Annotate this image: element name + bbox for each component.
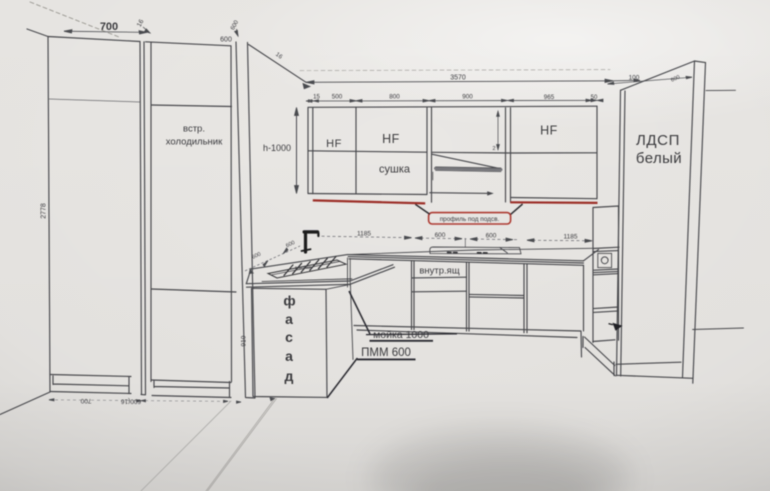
svg-text:2778: 2778 (41, 203, 48, 219)
svg-text:910: 910 (241, 335, 248, 346)
svg-text:белый: белый (636, 150, 682, 167)
svg-text:600(16: 600(16 (121, 398, 142, 405)
svg-text:1185: 1185 (564, 233, 578, 240)
svg-text:ПММ 600: ПММ 600 (361, 347, 411, 359)
svg-text:3570: 3570 (450, 75, 466, 82)
svg-text:HF: HF (326, 138, 342, 150)
svg-text:500: 500 (332, 94, 343, 101)
svg-text:HF: HF (540, 124, 558, 138)
svg-text:холодильник: холодильник (166, 137, 223, 148)
svg-text:600: 600 (220, 37, 232, 44)
svg-text:600: 600 (435, 232, 446, 239)
svg-text:800: 800 (389, 94, 400, 101)
svg-text:а: а (285, 311, 293, 327)
svg-text:965: 965 (544, 94, 555, 101)
svg-text:700: 700 (100, 21, 118, 33)
svg-text:встр.: встр. (183, 124, 205, 135)
svg-text:д: д (285, 368, 294, 384)
svg-text:ЛДСП: ЛДСП (636, 132, 680, 149)
svg-text:сушка: сушка (379, 164, 411, 176)
svg-text:2: 2 (492, 146, 495, 152)
svg-text:HF: HF (382, 132, 400, 146)
svg-text:900: 900 (462, 94, 473, 101)
svg-text:1185: 1185 (357, 231, 371, 238)
svg-text:h-1000: h-1000 (263, 143, 291, 153)
svg-text:50: 50 (591, 95, 598, 101)
svg-text:с: с (285, 329, 293, 345)
svg-text:15: 15 (313, 95, 320, 101)
svg-text:а: а (285, 348, 293, 364)
svg-text:внутр.ящ: внутр.ящ (419, 266, 459, 277)
svg-text:600: 600 (486, 233, 497, 240)
svg-text:700: 700 (80, 397, 91, 404)
svg-text:в.мойка: в.мойка (295, 264, 312, 270)
svg-text:100: 100 (629, 75, 640, 82)
svg-text:профиль под подсв.: профиль под подсв. (440, 216, 500, 223)
svg-text:ф: ф (283, 293, 295, 309)
